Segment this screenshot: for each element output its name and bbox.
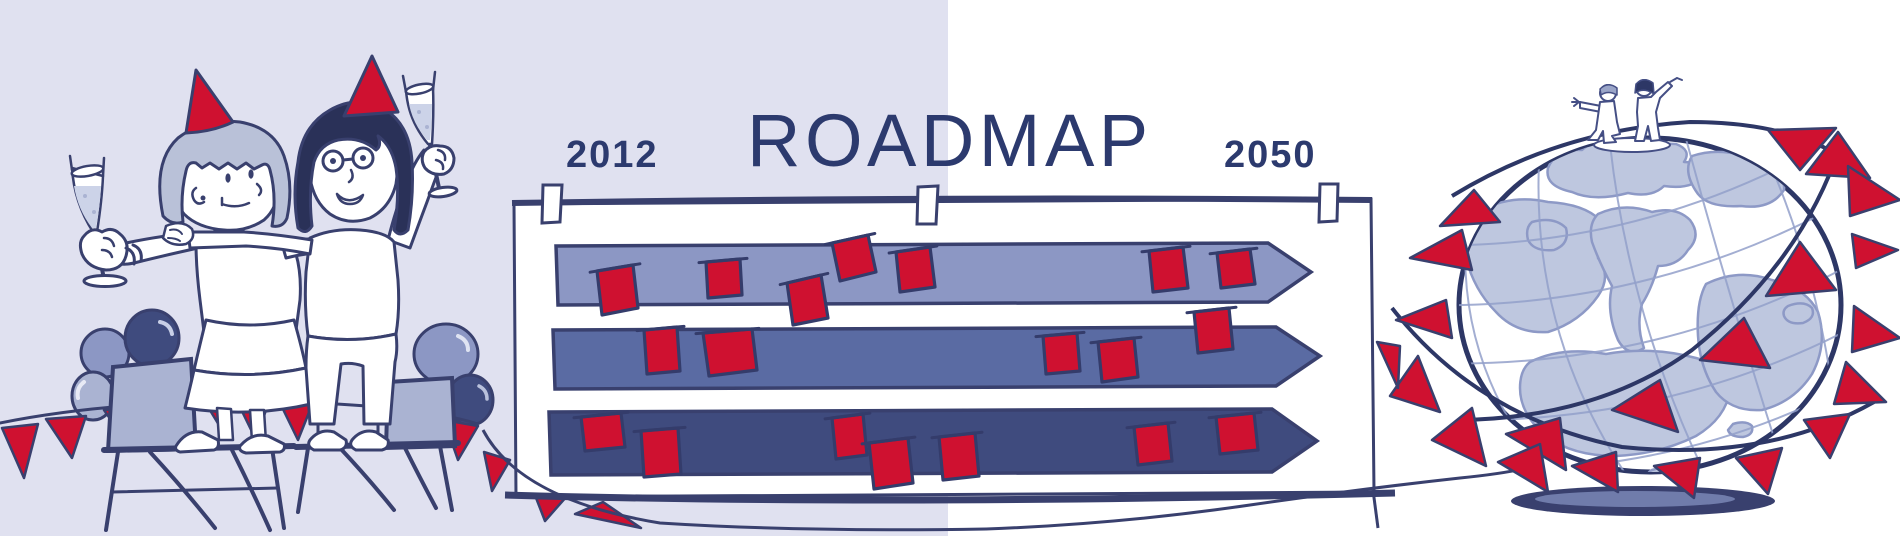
svg-text:2050: 2050 xyxy=(1224,134,1317,176)
svg-text:ROADMAP: ROADMAP xyxy=(747,99,1153,182)
svg-text:2012: 2012 xyxy=(566,134,659,176)
